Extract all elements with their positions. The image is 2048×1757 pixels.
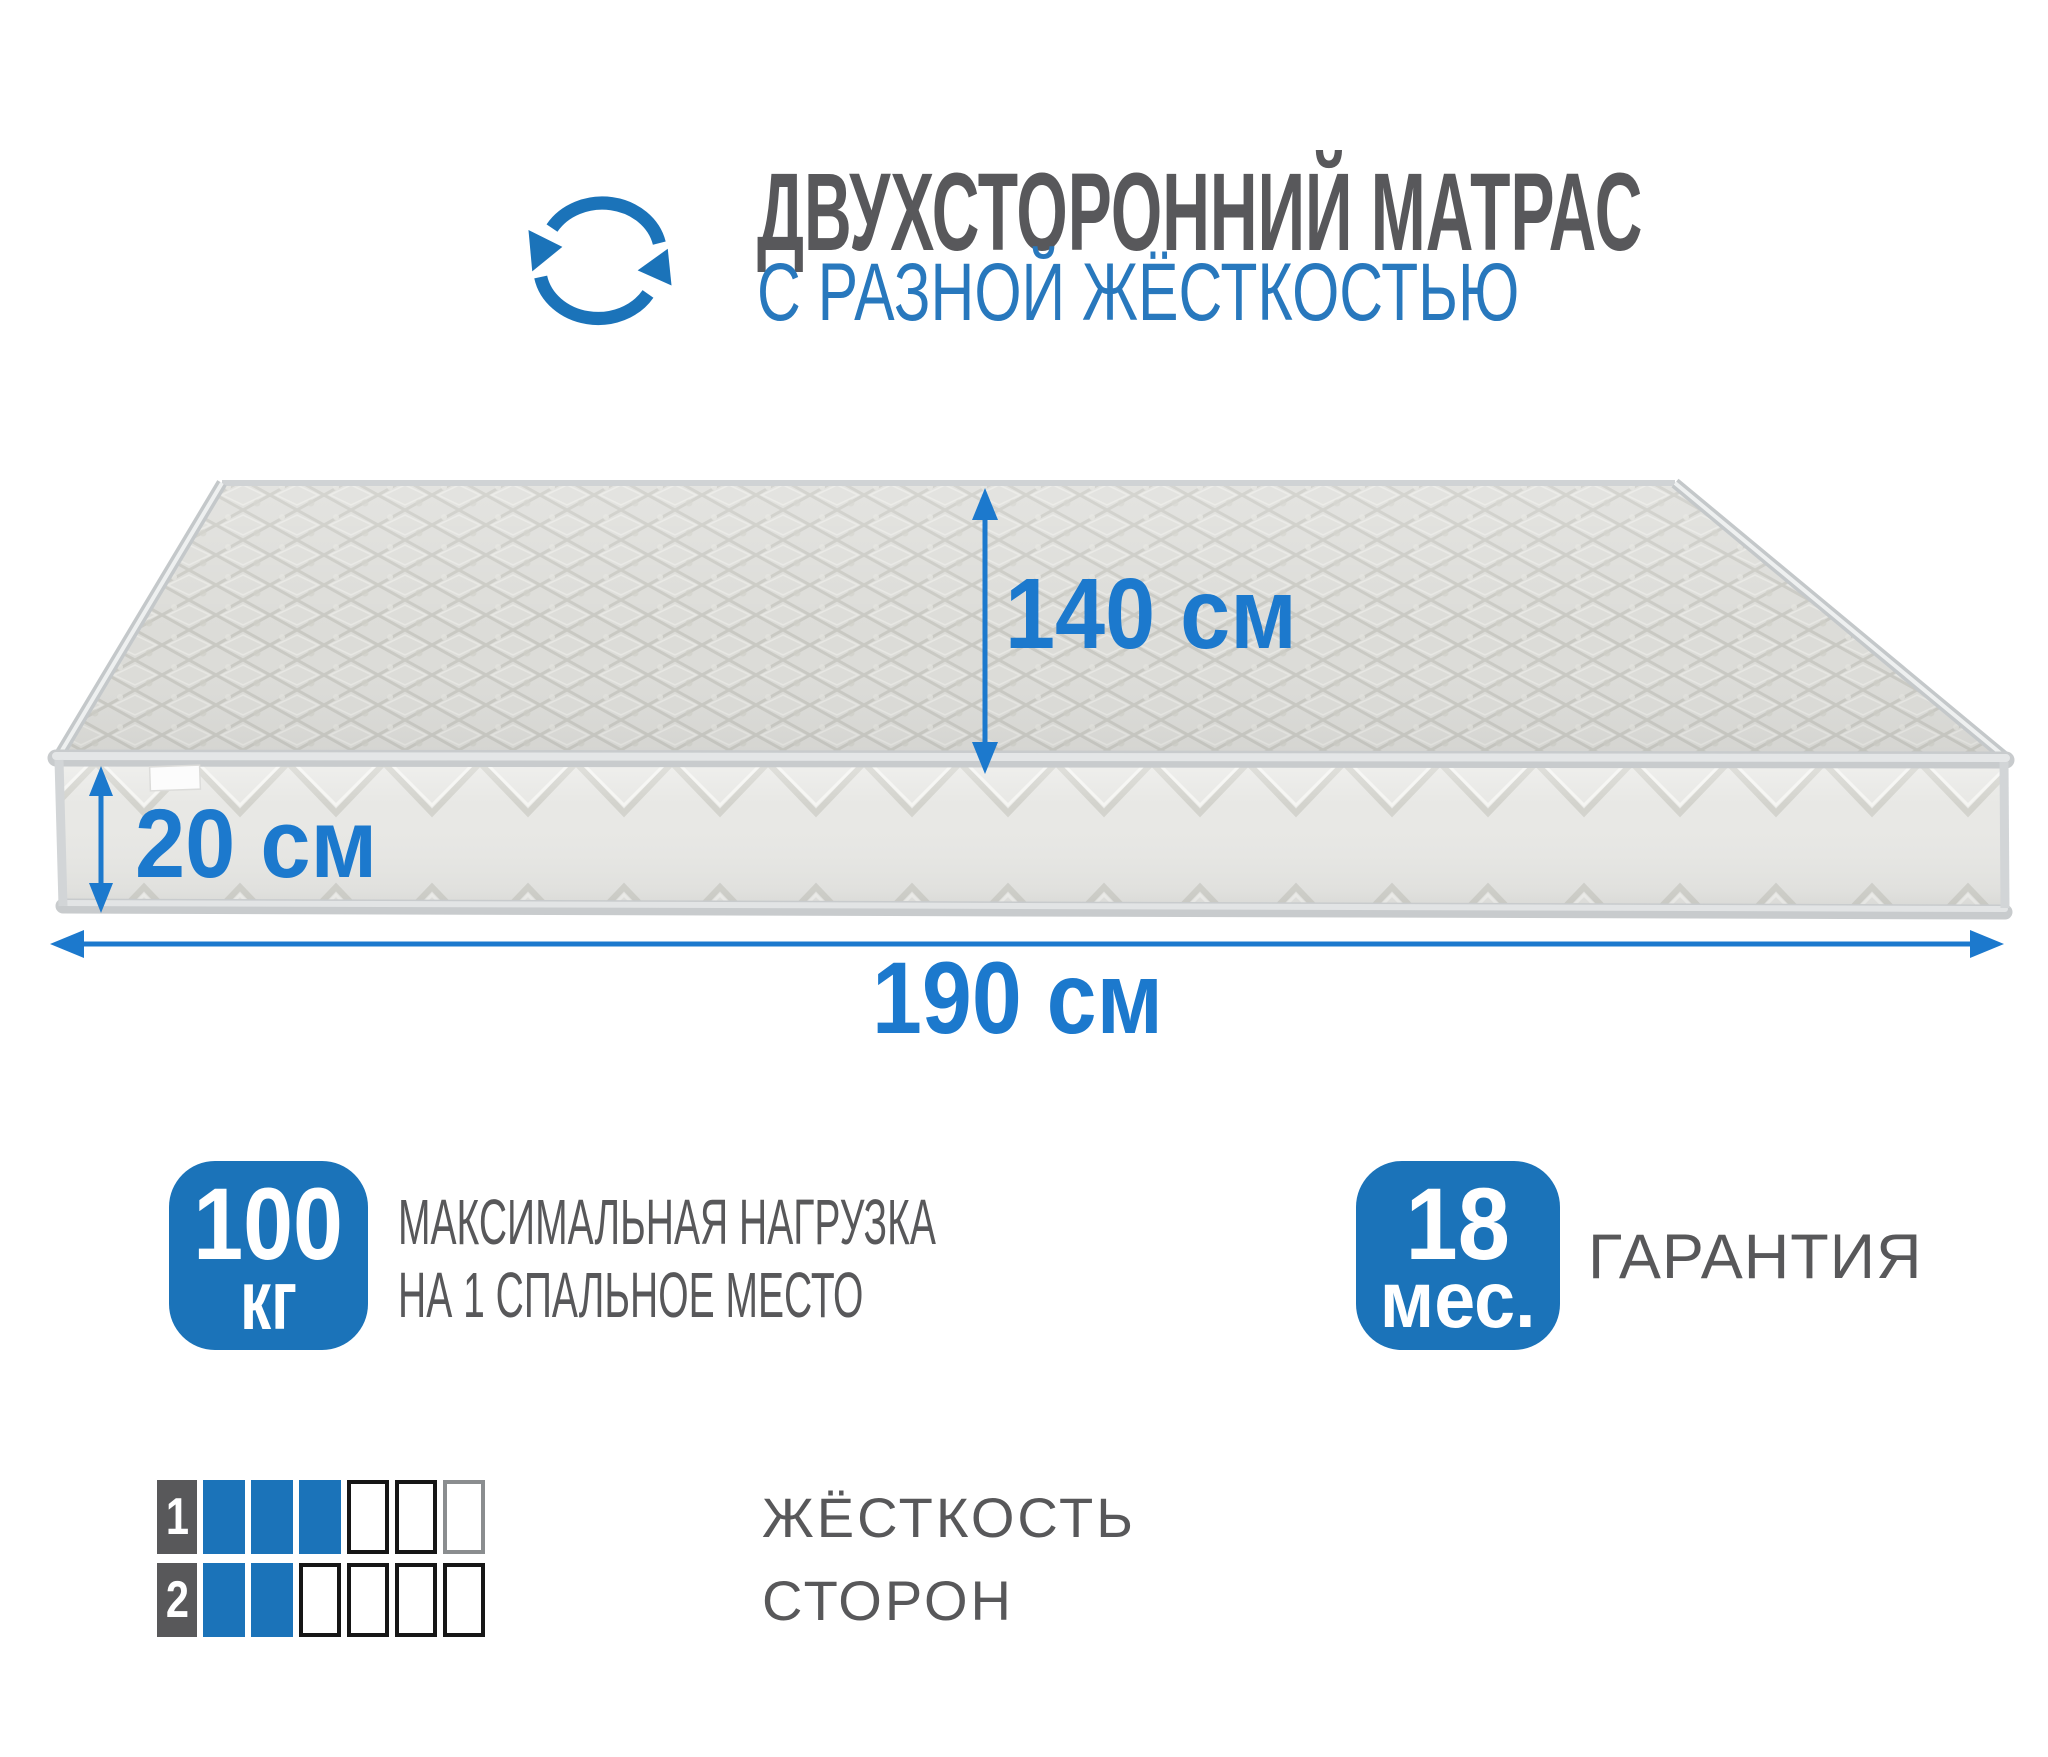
warranty-value: 18 [1401, 1183, 1514, 1265]
firmness-cell-filled [299, 1480, 341, 1554]
side-left-piping [59, 760, 63, 906]
side-2-number-text: 2 [165, 1570, 188, 1630]
firmness-section: 1 2 ЖЁСТКОСТЬ СТОРОН [157, 1480, 485, 1646]
firmness-cell-empty [299, 1563, 341, 1637]
firmness-cell-filled [203, 1480, 245, 1554]
max-load-caption: МАКСИМАЛЬНАЯ НАГРУЗКА НА 1 СПАЛЬНОЕ МЕСТ… [398, 1186, 1280, 1332]
max-load-caption-line1: МАКСИМАЛЬНАЯ НАГРУЗКА [398, 1186, 1280, 1259]
mattress-infographic: ДВУХСТОРОННИЙ МАТРАС С РАЗНОЙ ЖЁСТКОСТЬЮ [0, 0, 2048, 1757]
firmness-row-side1: 1 [157, 1480, 485, 1554]
max-load-caption-line1-text: МАКСИМАЛЬНАЯ НАГРУЗКА [398, 1186, 936, 1259]
warranty-unit: мес. [1373, 1269, 1542, 1331]
firmness-cell-filled [203, 1563, 245, 1637]
warranty-unit-text: мес. [1380, 1269, 1536, 1331]
max-load-caption-line2: НА 1 СПАЛЬНОЕ МЕСТО [398, 1259, 1280, 1332]
mattress-label-tag [150, 765, 201, 791]
firmness-caption: ЖЁСТКОСТЬ СТОРОН [762, 1480, 1136, 1637]
length-arrow-right-head [1970, 930, 2004, 958]
side-1-number-text: 1 [165, 1487, 188, 1547]
max-load-badge: 100 кг [169, 1161, 368, 1350]
firmness-caption-line2: СТОРОН [762, 1563, 1136, 1637]
firmness-row-side2: 2 [157, 1563, 485, 1637]
warranty-caption: ГАРАНТИЯ [1588, 1222, 1923, 1292]
max-load-unit: кг [230, 1269, 307, 1331]
firmness-caption-line1: ЖЁСТКОСТЬ [762, 1480, 1136, 1554]
warranty-value-text: 18 [1406, 1183, 1510, 1265]
firmness-cell-filled [251, 1480, 293, 1554]
firmness-cell-empty [395, 1563, 437, 1637]
front-top-piping-highlight [56, 756, 2006, 758]
firmness-cell-empty [347, 1480, 389, 1554]
side-right-piping [2004, 762, 2005, 908]
warranty-badge: 18 мес. [1356, 1161, 1560, 1350]
firmness-cell-empty [443, 1563, 485, 1637]
firmness-cell-filled [251, 1563, 293, 1637]
firmness-cell-empty [347, 1563, 389, 1637]
max-load-caption-line2-text: НА 1 СПАЛЬНОЕ МЕСТО [398, 1259, 863, 1332]
warranty-caption-text: ГАРАНТИЯ [1588, 1222, 1923, 1292]
length-label: 190 см [872, 942, 1163, 1056]
firmness-scale-side2 [203, 1563, 485, 1637]
length-dimension: 190 см [50, 930, 2004, 1055]
side-2-number: 2 [157, 1563, 197, 1637]
firmness-scale-side1 [203, 1480, 485, 1554]
side-1-number: 1 [157, 1480, 197, 1554]
firmness-cell-empty [395, 1480, 437, 1554]
depth-label: 140 см [1005, 559, 1297, 670]
height-label: 20 см [135, 789, 377, 898]
max-load-unit-text: кг [240, 1269, 297, 1331]
firmness-cell-empty [443, 1480, 485, 1554]
length-arrow-left-head [50, 930, 84, 958]
